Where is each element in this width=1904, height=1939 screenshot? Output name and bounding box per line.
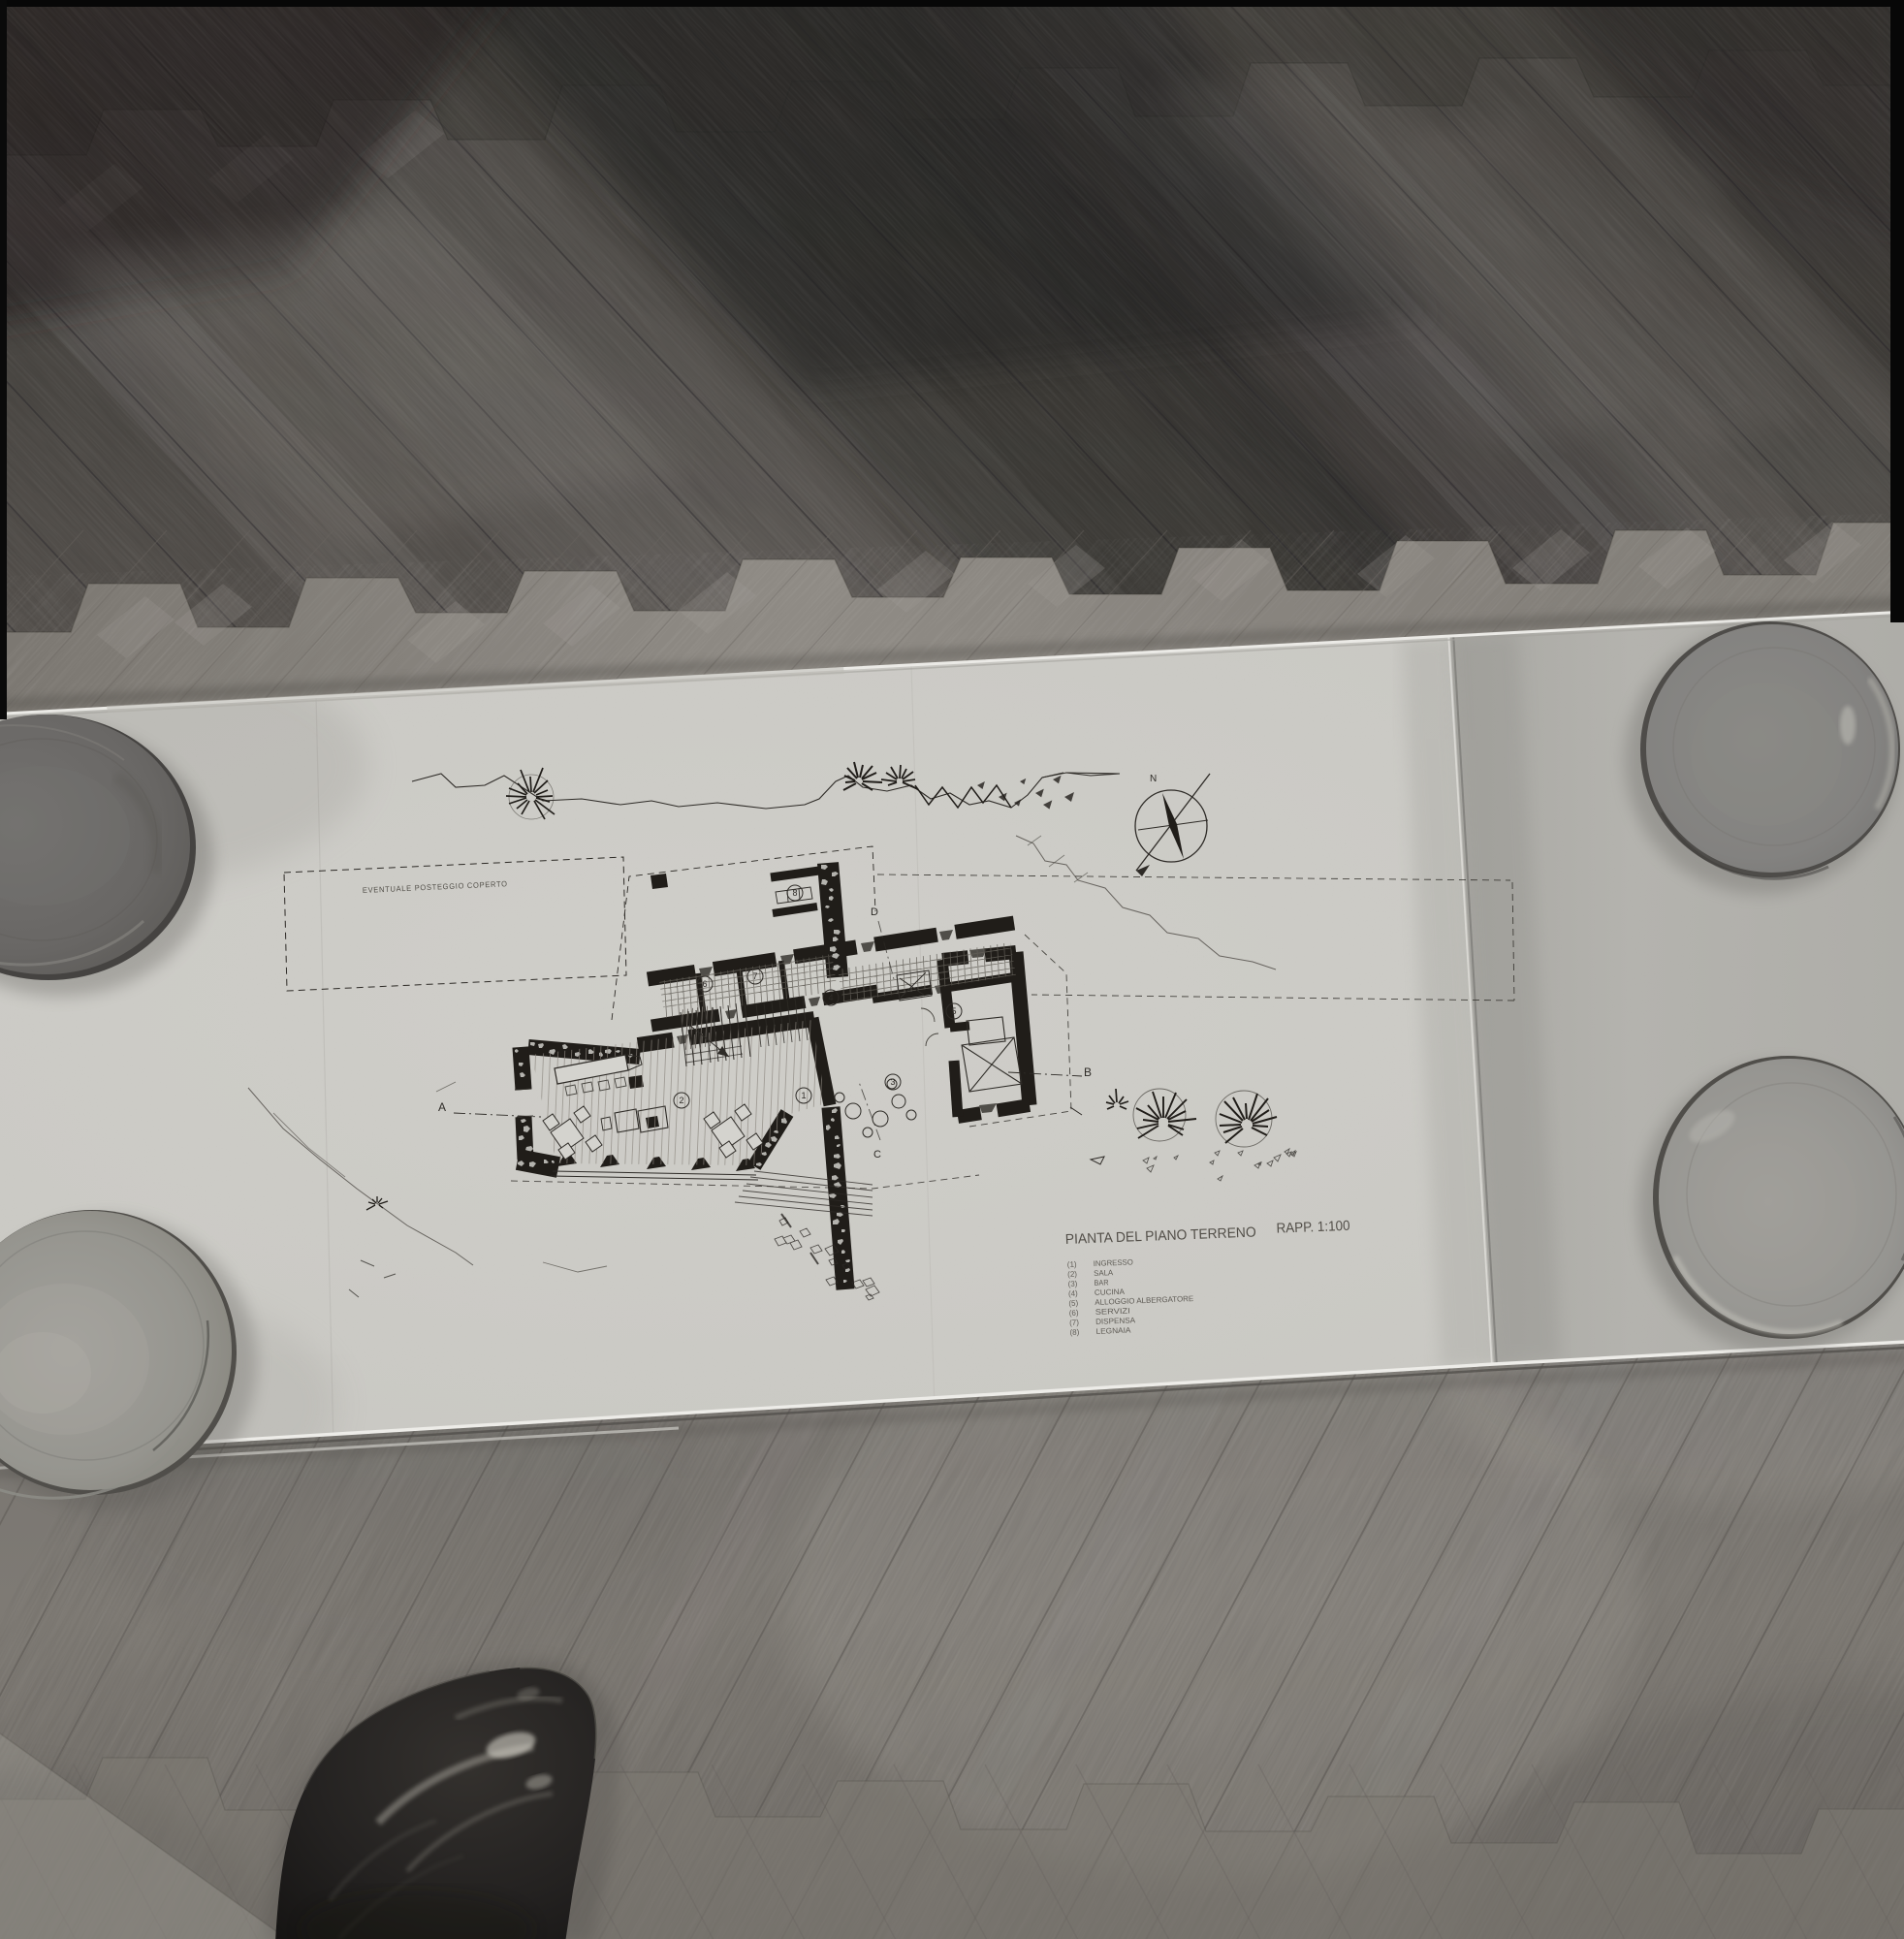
svg-text:SERVIZI: SERVIZI	[1095, 1307, 1130, 1317]
svg-text:5: 5	[951, 1006, 956, 1016]
svg-text:6: 6	[702, 979, 707, 989]
svg-text:(6): (6)	[1069, 1309, 1079, 1318]
svg-text:2: 2	[679, 1096, 683, 1105]
svg-text:(4): (4)	[1068, 1289, 1078, 1298]
svg-text:8: 8	[792, 888, 797, 898]
svg-text:BAR: BAR	[1094, 1278, 1109, 1287]
svg-text:DISPENSA: DISPENSA	[1095, 1316, 1136, 1326]
svg-text:(5): (5)	[1068, 1299, 1078, 1308]
svg-text:3: 3	[890, 1077, 895, 1087]
svg-text:N: N	[1150, 774, 1157, 784]
svg-text:(7): (7)	[1069, 1319, 1079, 1327]
svg-text:(2): (2)	[1067, 1270, 1077, 1279]
svg-text:CUCINA: CUCINA	[1095, 1287, 1126, 1297]
svg-text:4: 4	[828, 993, 833, 1002]
svg-text:INGRESSO: INGRESSO	[1094, 1257, 1133, 1268]
svg-text:(1): (1)	[1067, 1260, 1077, 1269]
svg-text:RAPP. 1:100: RAPP. 1:100	[1276, 1219, 1350, 1237]
svg-text:LEGNAIA: LEGNAIA	[1095, 1325, 1131, 1335]
svg-text:(3): (3)	[1067, 1280, 1077, 1288]
svg-text:(8): (8)	[1069, 1328, 1079, 1337]
svg-text:7: 7	[752, 971, 757, 981]
svg-text:B: B	[1084, 1065, 1092, 1079]
svg-text:D: D	[871, 906, 878, 918]
svg-text:A: A	[438, 1100, 446, 1114]
svg-text:C: C	[873, 1149, 881, 1160]
svg-text:SALA: SALA	[1094, 1268, 1114, 1278]
svg-text:1: 1	[801, 1091, 806, 1100]
